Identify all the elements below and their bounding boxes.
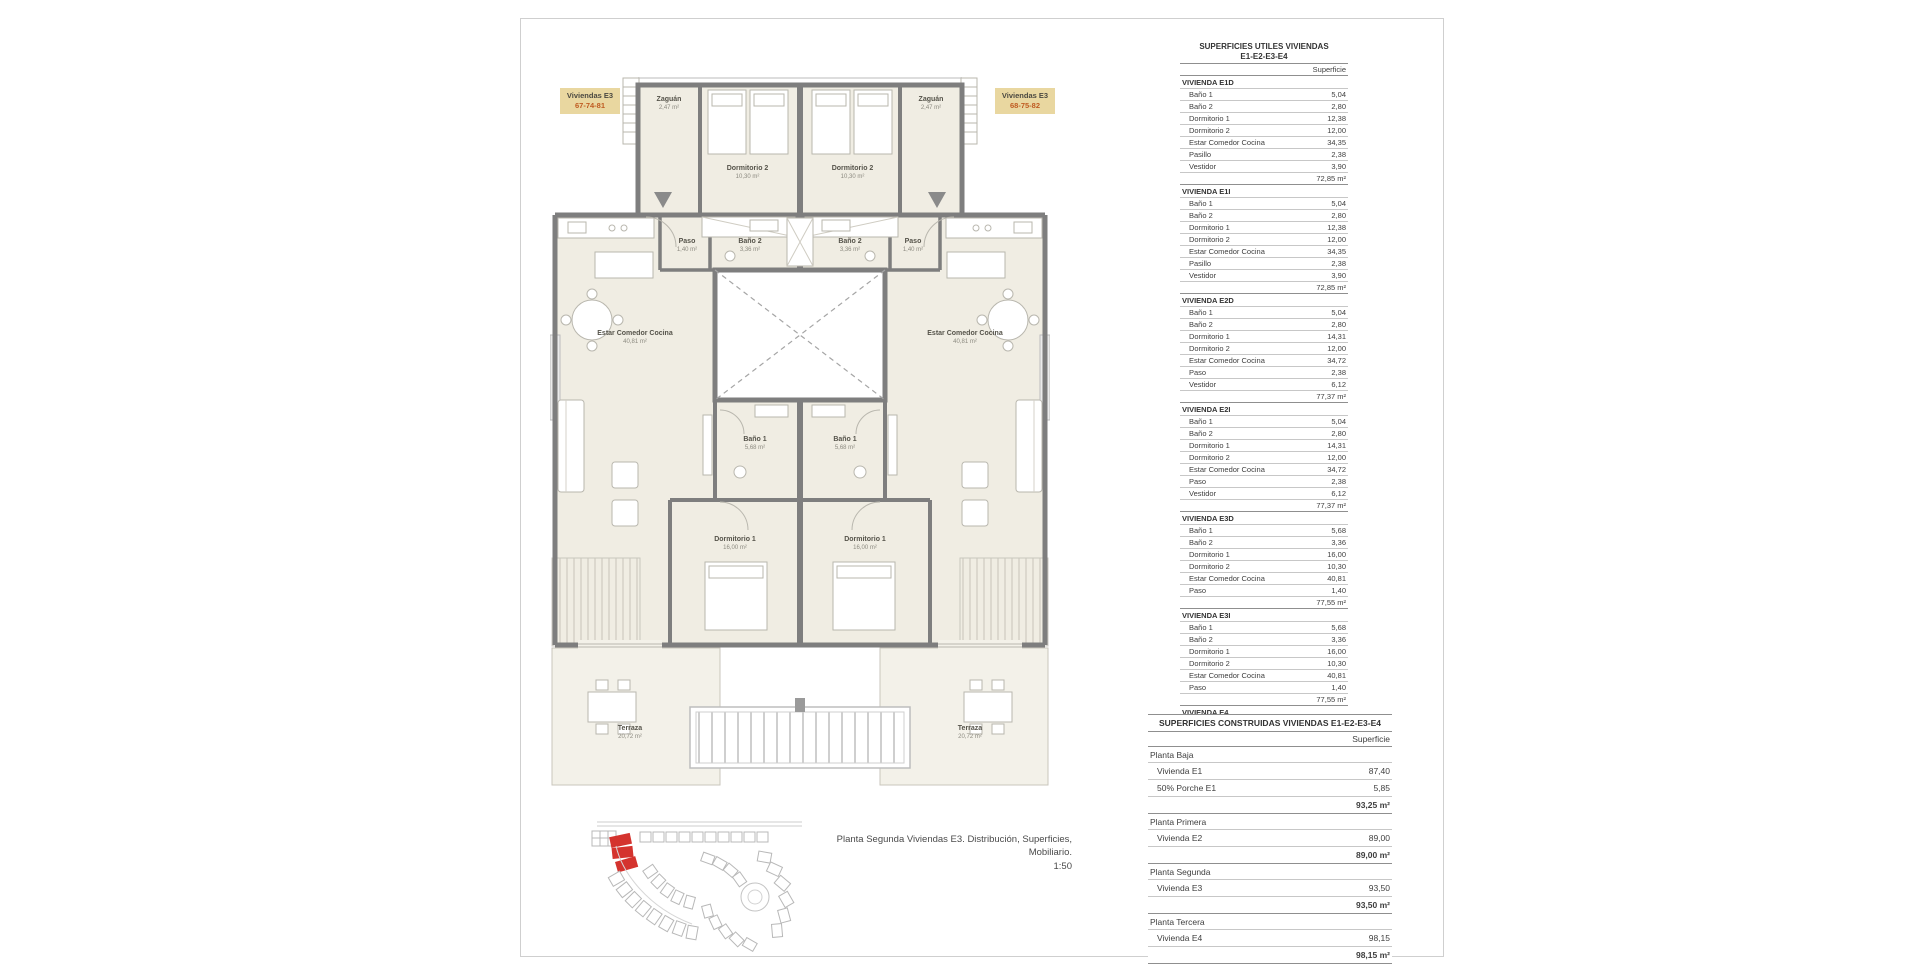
row-value: 6,12 [1331, 489, 1346, 498]
room-area: 5,68 m² [720, 445, 790, 453]
unit-label-title: Viviendas E3 [997, 91, 1053, 101]
table-row: Pasillo2,38 [1180, 258, 1348, 270]
table-row: Vivienda E393,50 [1148, 880, 1392, 897]
table-row: Vestidor3,90 [1180, 270, 1348, 282]
table-row: Baño 15,68 [1180, 622, 1348, 634]
table-row: Dormitorio 212,00 [1180, 125, 1348, 137]
row-value: 12,00 [1327, 344, 1346, 353]
room-name: Dormitorio 1 [685, 536, 785, 545]
table-row: Baño 22,80 [1180, 319, 1348, 331]
row-value: 5,04 [1331, 90, 1346, 99]
room-name: Baño 2 [817, 238, 883, 247]
row-label: Vivienda E3 [1150, 883, 1202, 893]
table-total-row: x77,37 m² [1180, 500, 1348, 512]
row-label: Vestidor [1182, 162, 1216, 171]
table-row: Baño 22,80 [1180, 210, 1348, 222]
table-row: Paso1,40 [1180, 682, 1348, 694]
row-label: Estar Comedor Cocina [1182, 671, 1265, 680]
room-name: Zaguán [896, 96, 966, 105]
room-name: Terraza [930, 725, 1010, 734]
row-label: Baño 2 [1182, 320, 1213, 329]
lightwell [715, 270, 885, 400]
room-area: 2,47 m² [634, 105, 704, 113]
row-label: Dormitorio 2 [1182, 126, 1230, 135]
row-label: Baño 2 [1182, 211, 1213, 220]
room-name: Dormitorio 2 [805, 165, 900, 174]
room-area: 16,00 m² [815, 545, 915, 553]
row-value: 2,38 [1331, 477, 1346, 486]
row-label: Baño 1 [1182, 526, 1213, 535]
table-row: Dormitorio 212,00 [1180, 452, 1348, 464]
row-value: 72,85 m² [1316, 174, 1346, 183]
table-total-row: x89,00 m² [1148, 847, 1392, 864]
room-name: Baño 1 [720, 436, 790, 445]
row-value: 14,31 [1327, 441, 1346, 450]
row-label: Baño 1 [1182, 199, 1213, 208]
row-value: 5,04 [1331, 417, 1346, 426]
row-value: 3,36 [1331, 635, 1346, 644]
row-label: Baño 2 [1182, 429, 1213, 438]
row-label: Dormitorio 2 [1182, 344, 1230, 353]
table-row: Vivienda E187,40 [1148, 763, 1392, 780]
row-value: 6,12 [1331, 380, 1346, 389]
row-label: Pasillo [1182, 150, 1211, 159]
row-value: 34,72 [1327, 356, 1346, 365]
row-label: Estar Comedor Cocina [1182, 574, 1265, 583]
row-value: 87,40 [1369, 766, 1390, 776]
room-name: Zaguán [634, 96, 704, 105]
row-value: 5,68 [1331, 623, 1346, 632]
row-label: Dormitorio 1 [1182, 441, 1230, 450]
table-section-header: VIVIENDA E3D [1180, 512, 1348, 525]
row-value: 77,37 m² [1316, 392, 1346, 401]
table-row: Estar Comedor Cocina34,35 [1180, 246, 1348, 258]
row-value: 5,85 [1373, 783, 1390, 793]
table-row: Vestidor6,12 [1180, 488, 1348, 500]
row-label: Baño 2 [1182, 538, 1213, 547]
table-row: Estar Comedor Cocina34,72 [1180, 355, 1348, 367]
table-row: Vestidor3,90 [1180, 161, 1348, 173]
room-area: 2,47 m² [896, 105, 966, 113]
room-name: Paso [888, 238, 938, 247]
row-value: 2,38 [1331, 150, 1346, 159]
table-total-row: x72,85 m² [1180, 282, 1348, 294]
row-value: 14,31 [1327, 332, 1346, 341]
room-area: 20,72 m² [590, 734, 670, 742]
room-area: 16,00 m² [685, 545, 785, 553]
room-area: 3,36 m² [817, 247, 883, 255]
row-value: 12,00 [1327, 235, 1346, 244]
table-total-row: x72,85 m² [1180, 173, 1348, 185]
row-value: 5,04 [1331, 308, 1346, 317]
row-value: 3,36 [1331, 538, 1346, 547]
table-section-header: Planta Baja [1148, 747, 1392, 763]
row-value: 2,38 [1331, 259, 1346, 268]
table-section-header: Planta Tercera [1148, 914, 1392, 930]
room-name: Estar Comedor Cocina [910, 330, 1020, 339]
row-value: 34,72 [1327, 465, 1346, 474]
row-label: Estar Comedor Cocina [1182, 356, 1265, 365]
row-label: Paso [1182, 477, 1206, 486]
row-label: Dormitorio 1 [1182, 114, 1230, 123]
row-label: Vivienda E4 [1150, 933, 1202, 943]
row-value: 72,85 m² [1316, 283, 1346, 292]
table-row: Dormitorio 114,31 [1180, 331, 1348, 343]
table-title: SUPERFICIES CONSTRUIDAS VIVIENDAS E1-E2-… [1148, 714, 1392, 731]
table-section-header: VIVIENDA E3I [1180, 609, 1348, 622]
row-value: 98,15 m² [1356, 950, 1390, 960]
table-row: Baño 15,68 [1180, 525, 1348, 537]
row-label: Vivienda E2 [1150, 833, 1202, 843]
room-name: Baño 2 [717, 238, 783, 247]
row-value: 12,38 [1327, 114, 1346, 123]
row-label: Paso [1182, 683, 1206, 692]
row-label: Dormitorio 2 [1182, 453, 1230, 462]
room-area: 10,30 m² [700, 174, 795, 182]
room-label-estar-right: Estar Comedor Cocina40,81 m² [910, 330, 1020, 346]
table-row: Paso1,40 [1180, 585, 1348, 597]
table-row: Dormitorio 114,31 [1180, 440, 1348, 452]
row-value: 93,25 m² [1356, 800, 1390, 810]
row-label: Estar Comedor Cocina [1182, 247, 1265, 256]
table-row: Baño 15,04 [1180, 89, 1348, 101]
table-row: Baño 15,04 [1180, 198, 1348, 210]
table-row: Baño 22,80 [1180, 101, 1348, 113]
room-area: 1,40 m² [662, 247, 712, 255]
room-label-zaguan-left: Zaguán2,47 m² [634, 96, 704, 112]
room-name: Dormitorio 2 [700, 165, 795, 174]
table-section-header: VIVIENDA E2D [1180, 294, 1348, 307]
floor-plan-drawing [550, 70, 1050, 795]
room-label-dormitorio1-left: Dormitorio 116,00 m² [685, 536, 785, 552]
room-area: 1,40 m² [888, 247, 938, 255]
table-row: Baño 23,36 [1180, 634, 1348, 646]
caption-scale: 1:50 [800, 860, 1072, 873]
table-row: Vivienda E498,15 [1148, 930, 1392, 947]
room-label-paso-right: Paso1,40 m² [888, 238, 938, 254]
row-value: 2,80 [1331, 211, 1346, 220]
row-value: 10,30 [1327, 562, 1346, 571]
row-label: Dormitorio 1 [1182, 223, 1230, 232]
row-value: 93,50 m² [1356, 900, 1390, 910]
row-label: Vestidor [1182, 380, 1216, 389]
terrace-railing [690, 698, 910, 768]
room-label-dormitorio1-right: Dormitorio 116,00 m² [815, 536, 915, 552]
row-value: 2,80 [1331, 102, 1346, 111]
room-label-terraza-left: Terraza20,72 m² [590, 725, 670, 741]
table-row: Dormitorio 116,00 [1180, 646, 1348, 658]
unit-label-title: Viviendas E3 [562, 91, 618, 101]
row-value: 2,80 [1331, 320, 1346, 329]
table-row: Dormitorio 210,30 [1180, 658, 1348, 670]
row-value: 40,81 [1327, 574, 1346, 583]
row-value: 77,55 m² [1316, 695, 1346, 704]
row-value: 5,68 [1331, 526, 1346, 535]
row-label: Baño 1 [1182, 623, 1213, 632]
table-section-header: VIVIENDA E1D [1180, 76, 1348, 89]
room-label-zaguan-right: Zaguán2,47 m² [896, 96, 966, 112]
table-row: Vivienda E289,00 [1148, 830, 1392, 847]
room-name: Baño 1 [810, 436, 880, 445]
row-value: 34,35 [1327, 138, 1346, 147]
site-location-map [552, 812, 802, 962]
row-value: 89,00 [1369, 833, 1390, 843]
table-total-row: x93,50 m² [1148, 897, 1392, 914]
room-name: Paso [662, 238, 712, 247]
room-area: 5,68 m² [810, 445, 880, 453]
table-section-header: Planta Primera [1148, 814, 1392, 830]
row-label: Estar Comedor Cocina [1182, 138, 1265, 147]
table-total-row: x98,15 m² [1148, 947, 1392, 964]
superficies-construidas-table: SUPERFICIES CONSTRUIDAS VIVIENDAS E1-E2-… [1148, 714, 1392, 964]
row-label: Vivienda E1 [1150, 766, 1202, 776]
floor-plan: Zaguán2,47 m² Dormitorio 210,30 m² Paso1… [550, 70, 1050, 795]
row-label: Dormitorio 2 [1182, 562, 1230, 571]
row-label: Baño 1 [1182, 90, 1213, 99]
unit-label-numbers: 68-75-82 [997, 101, 1053, 111]
row-label: Dormitorio 2 [1182, 659, 1230, 668]
table-section-header: VIVIENDA E2I [1180, 403, 1348, 416]
unit-label-left: Viviendas E3 67-74-81 [560, 88, 620, 114]
table-row: Dormitorio 112,38 [1180, 222, 1348, 234]
table-total-row: x93,25 m² [1148, 797, 1392, 814]
row-label: Estar Comedor Cocina [1182, 465, 1265, 474]
row-value: 1,40 [1331, 586, 1346, 595]
room-label-bano1-left: Baño 15,68 m² [720, 436, 790, 452]
row-label: Pasillo [1182, 259, 1211, 268]
row-value: 12,00 [1327, 453, 1346, 462]
table-column-header: Superficie [1180, 63, 1348, 76]
room-label-bano2-right: Baño 23,36 m² [817, 238, 883, 254]
row-value: 98,15 [1369, 933, 1390, 943]
room-label-paso-left: Paso1,40 m² [662, 238, 712, 254]
room-label-terraza-right: Terraza20,72 m² [930, 725, 1010, 741]
table-row: Baño 22,80 [1180, 428, 1348, 440]
table-title: SUPERFICIES UTILES VIVIENDAS E1-E2-E3-E4 [1180, 40, 1348, 63]
drawing-sheet: Zaguán2,47 m² Dormitorio 210,30 m² Paso1… [0, 0, 1920, 980]
row-value: 34,35 [1327, 247, 1346, 256]
room-label-estar-left: Estar Comedor Cocina40,81 m² [580, 330, 690, 346]
row-value: 2,38 [1331, 368, 1346, 377]
table-row: Baño 15,04 [1180, 416, 1348, 428]
table-row: Paso2,38 [1180, 476, 1348, 488]
row-value: 89,00 m² [1356, 850, 1390, 860]
room-label-bano1-right: Baño 15,68 m² [810, 436, 880, 452]
caption-text: Planta Segunda Viviendas E3. Distribució… [800, 833, 1072, 860]
unit-label-right: Viviendas E3 68-75-82 [995, 88, 1055, 114]
table-row: Estar Comedor Cocina34,72 [1180, 464, 1348, 476]
row-label: Dormitorio 2 [1182, 235, 1230, 244]
row-label: Baño 2 [1182, 635, 1213, 644]
row-label: Dormitorio 1 [1182, 647, 1230, 656]
room-area: 40,81 m² [580, 339, 690, 347]
row-label: Vestidor [1182, 489, 1216, 498]
row-value: 16,00 [1327, 550, 1346, 559]
row-label: Dormitorio 1 [1182, 332, 1230, 341]
table-row: Vestidor6,12 [1180, 379, 1348, 391]
row-label: Paso [1182, 586, 1206, 595]
table-row: Baño 15,04 [1180, 307, 1348, 319]
row-value: 77,37 m² [1316, 501, 1346, 510]
row-label: Vestidor [1182, 271, 1216, 280]
row-value: 93,50 [1369, 883, 1390, 893]
row-label: Baño 2 [1182, 102, 1213, 111]
table-row: Dormitorio 212,00 [1180, 343, 1348, 355]
row-value: 3,90 [1331, 271, 1346, 280]
row-value: 12,38 [1327, 223, 1346, 232]
room-name: Terraza [590, 725, 670, 734]
superficies-utiles-table: SUPERFICIES UTILES VIVIENDAS E1-E2-E3-E4… [1180, 40, 1348, 827]
table-total-row: x77,55 m² [1180, 597, 1348, 609]
table-row: Paso2,38 [1180, 367, 1348, 379]
row-value: 2,80 [1331, 429, 1346, 438]
table-row: Pasillo2,38 [1180, 149, 1348, 161]
row-value: 10,30 [1327, 659, 1346, 668]
table-row: Estar Comedor Cocina40,81 [1180, 573, 1348, 585]
row-value: 5,04 [1331, 199, 1346, 208]
room-area: 3,36 m² [717, 247, 783, 255]
table-column-header: Superficie [1148, 731, 1392, 747]
table-total-row: x77,37 m² [1180, 391, 1348, 403]
table-row: 50% Porche E15,85 [1148, 780, 1392, 797]
table-row: Dormitorio 212,00 [1180, 234, 1348, 246]
table-row: Baño 23,36 [1180, 537, 1348, 549]
row-label: Paso [1182, 368, 1206, 377]
table-section-header: Planta Segunda [1148, 864, 1392, 880]
table-row: Estar Comedor Cocina34,35 [1180, 137, 1348, 149]
room-area: 20,72 m² [930, 734, 1010, 742]
table-row: Dormitorio 112,38 [1180, 113, 1348, 125]
room-label-dormitorio2-left: Dormitorio 210,30 m² [700, 165, 795, 181]
row-label: Dormitorio 1 [1182, 550, 1230, 559]
drawing-caption: Planta Segunda Viviendas E3. Distribució… [800, 833, 1072, 873]
row-value: 16,00 [1327, 647, 1346, 656]
table-row: Dormitorio 210,30 [1180, 561, 1348, 573]
room-label-bano2-left: Baño 23,36 m² [717, 238, 783, 254]
table-section-header: VIVIENDA E1I [1180, 185, 1348, 198]
row-value: 12,00 [1327, 126, 1346, 135]
row-label: Baño 1 [1182, 308, 1213, 317]
room-name: Dormitorio 1 [815, 536, 915, 545]
row-value: 1,40 [1331, 683, 1346, 692]
room-area: 10,30 m² [805, 174, 900, 182]
row-value: 77,55 m² [1316, 598, 1346, 607]
row-label: Baño 1 [1182, 417, 1213, 426]
room-area: 40,81 m² [910, 339, 1020, 347]
table-row: Dormitorio 116,00 [1180, 549, 1348, 561]
table-row: Estar Comedor Cocina40,81 [1180, 670, 1348, 682]
row-value: 3,90 [1331, 162, 1346, 171]
row-value: 40,81 [1327, 671, 1346, 680]
room-label-dormitorio2-right: Dormitorio 210,30 m² [805, 165, 900, 181]
row-label: 50% Porche E1 [1150, 783, 1216, 793]
table-total-row: x77,55 m² [1180, 694, 1348, 706]
unit-label-numbers: 67-74-81 [562, 101, 618, 111]
room-name: Estar Comedor Cocina [580, 330, 690, 339]
